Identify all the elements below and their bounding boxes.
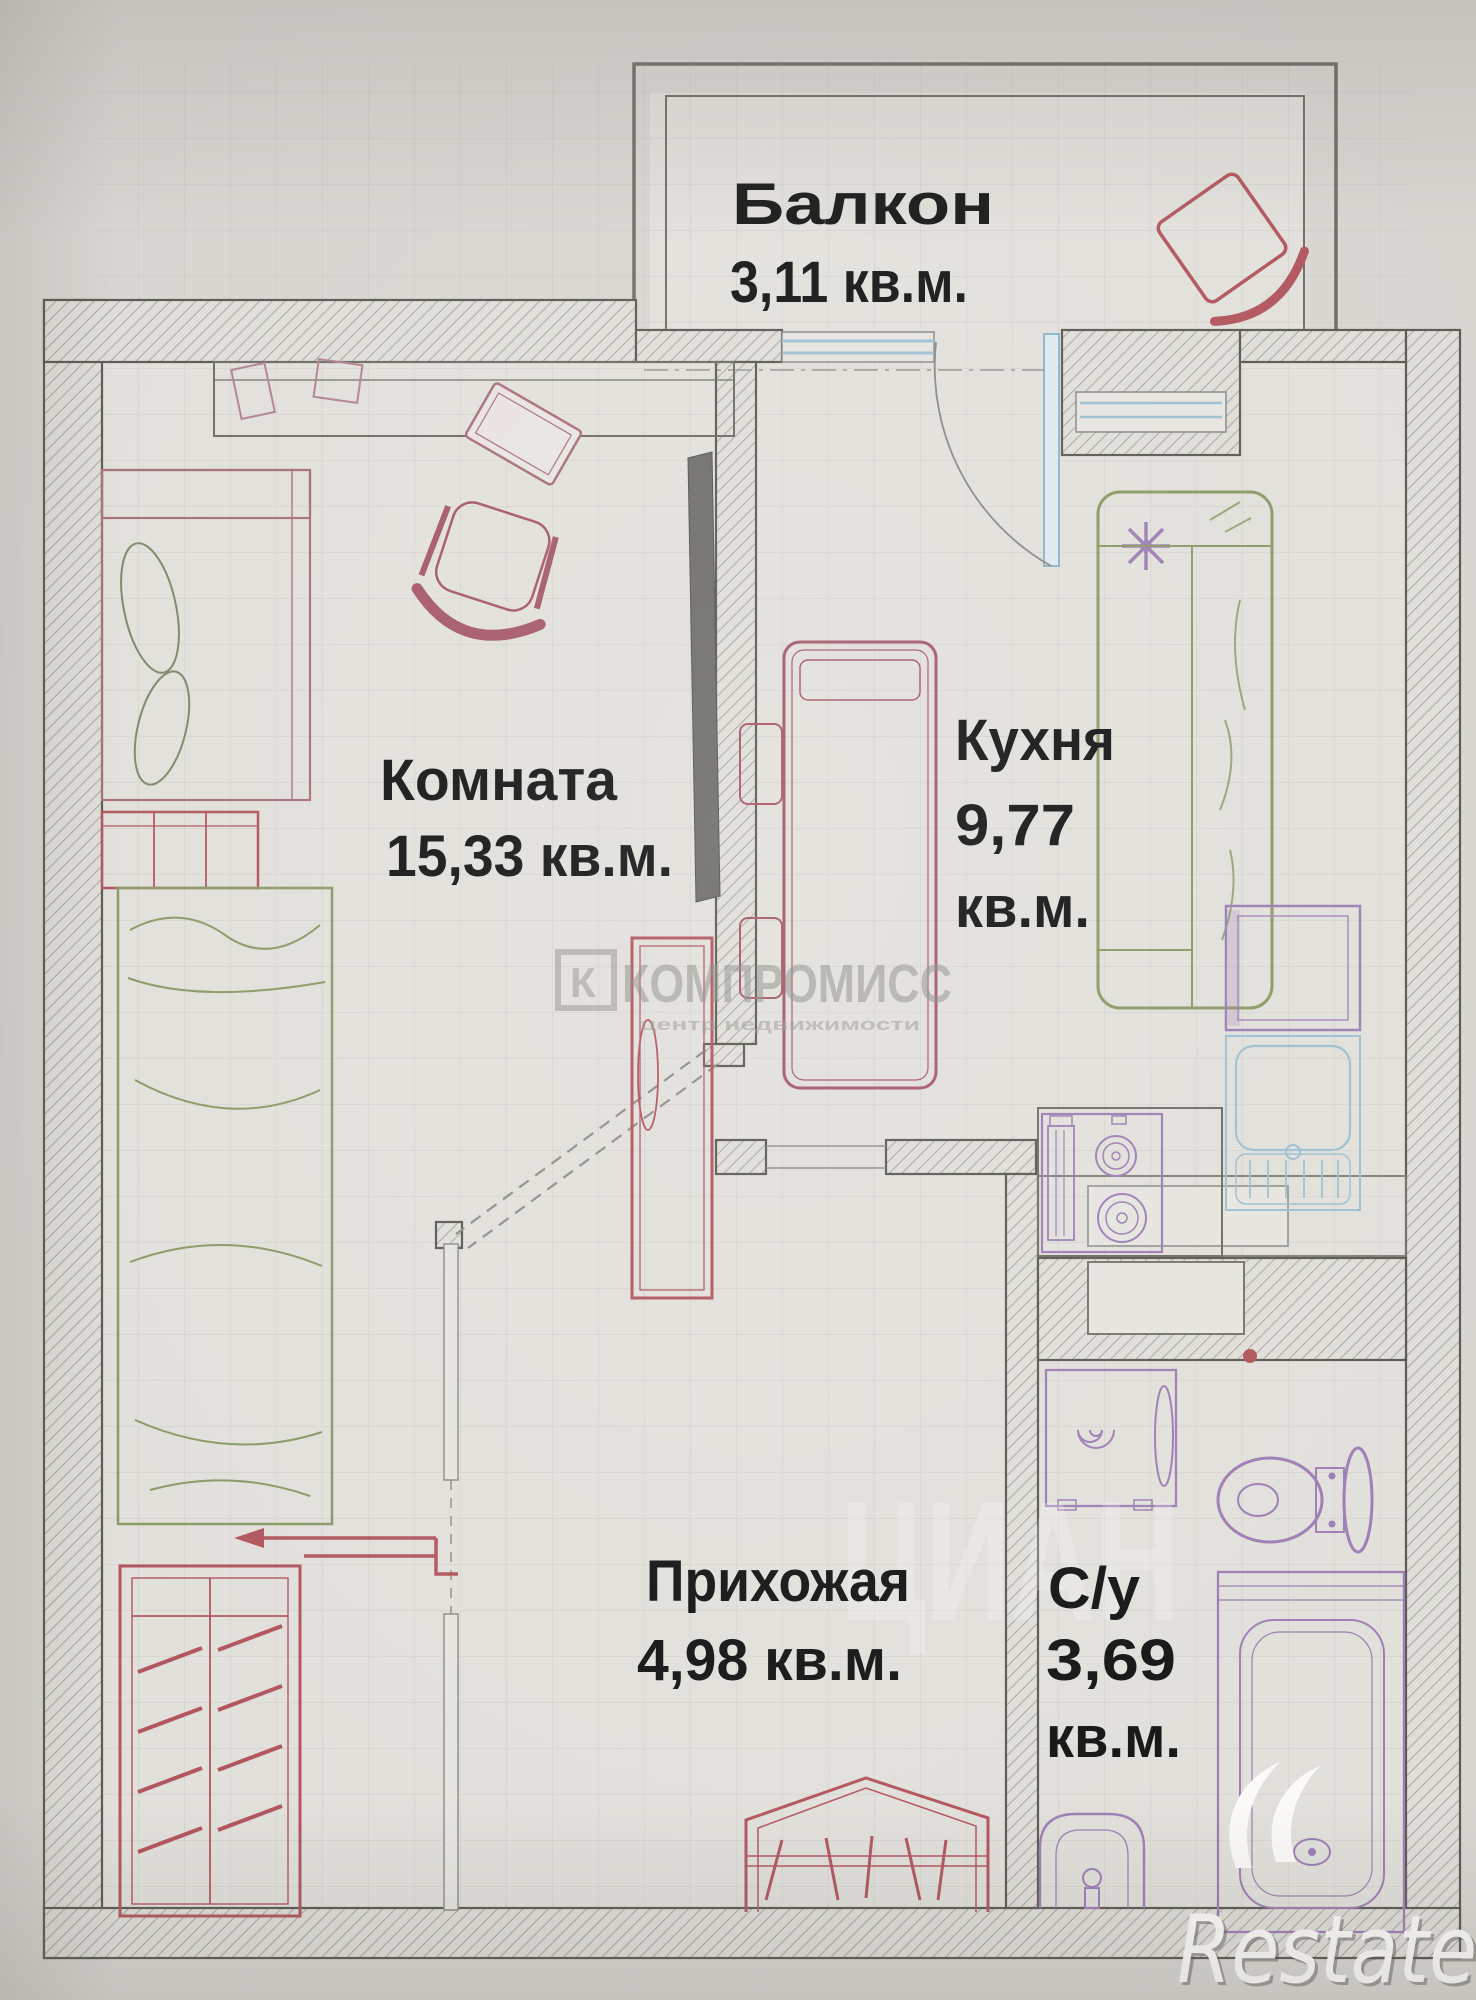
photo-shadow-left	[0, 0, 1476, 2000]
floorplan-drawing: ЦИАН К КОМПРОМИСС центр недвижимости Бал…	[0, 0, 1476, 2000]
floorplan-photo: ЦИАН К КОМПРОМИСС центр недвижимости Бал…	[0, 0, 1476, 2000]
